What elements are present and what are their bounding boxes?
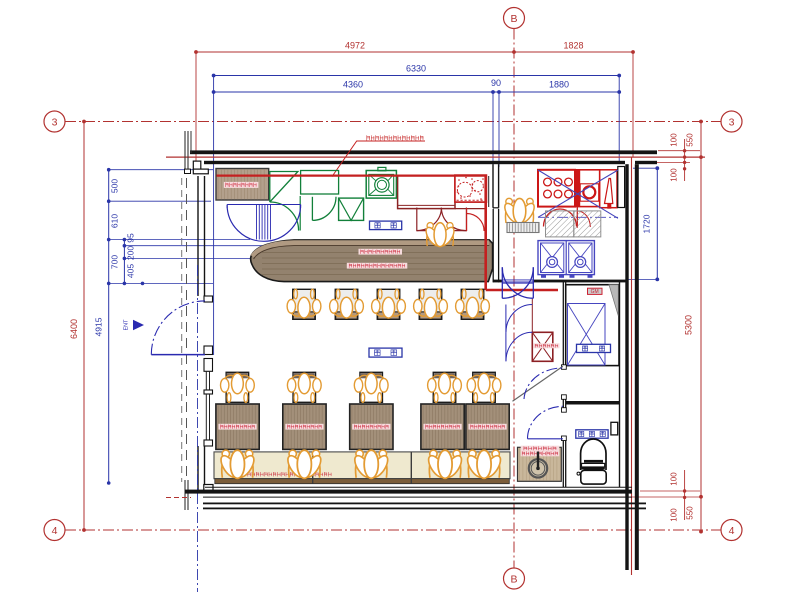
svg-text:1880: 1880 [549,80,569,90]
svg-text:3: 3 [729,116,735,128]
svg-text:B: B [510,13,517,25]
svg-text:1720: 1720 [642,214,652,233]
svg-text:100: 100 [670,168,679,182]
svg-text:4972: 4972 [345,41,365,51]
svg-text:405: 405 [126,264,136,278]
svg-text:200: 200 [126,246,136,260]
svg-text:550: 550 [686,506,695,520]
svg-text:90: 90 [491,78,501,88]
svg-text:4360: 4360 [343,80,363,90]
svg-text:4: 4 [729,525,735,537]
svg-text:3: 3 [52,116,58,128]
svg-text:100: 100 [670,472,679,486]
svg-text:100: 100 [670,508,679,522]
svg-text:550: 550 [686,133,695,147]
svg-text:6400: 6400 [69,319,79,339]
svg-text:5300: 5300 [684,315,694,335]
svg-text:610: 610 [110,214,120,228]
svg-text:700: 700 [110,255,120,269]
svg-text:GM: GM [591,289,599,295]
svg-text:95: 95 [126,233,136,243]
svg-text:6330: 6330 [406,64,426,74]
svg-text:ENT: ENT [124,319,130,331]
svg-text:1828: 1828 [563,41,583,51]
svg-text:B: B [510,573,517,585]
svg-text:4915: 4915 [94,317,104,336]
svg-text:100: 100 [670,133,679,147]
svg-text:500: 500 [110,179,120,193]
svg-text:4: 4 [52,525,58,537]
